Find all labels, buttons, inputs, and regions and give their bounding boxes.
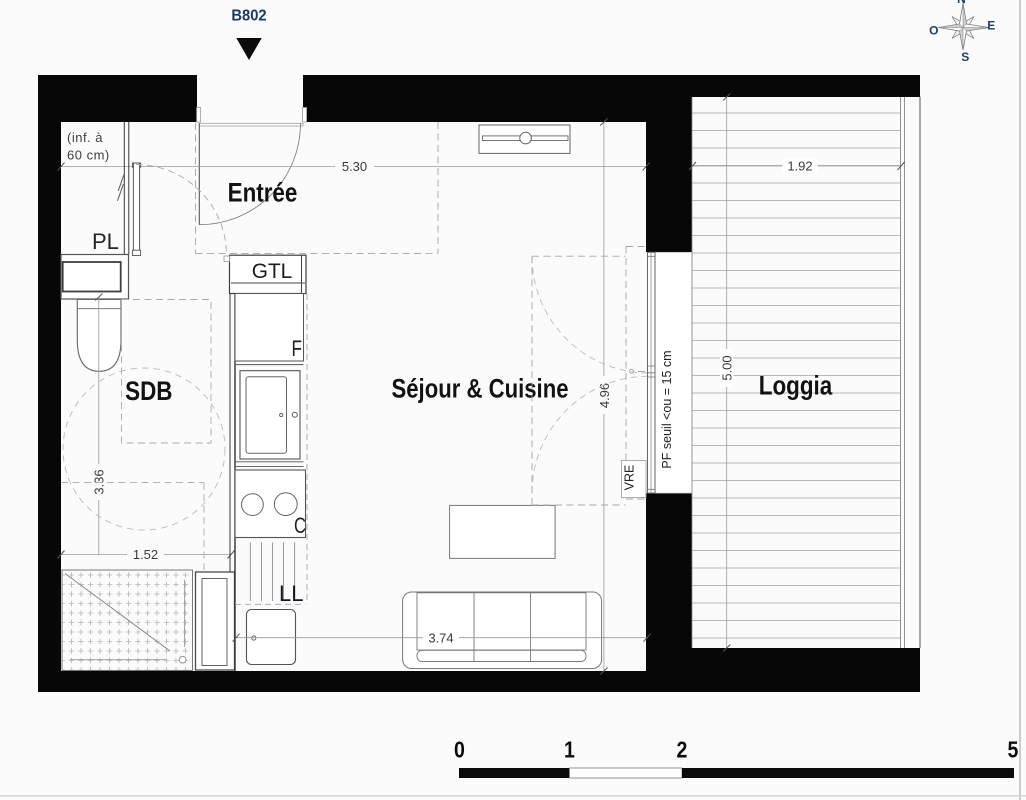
svg-text:60 cm): 60 cm) (67, 148, 110, 163)
svg-text:N: N (957, 0, 966, 6)
svg-text:PF seuil <ou = 15 cm: PF seuil <ou = 15 cm (660, 350, 674, 468)
svg-text:2: 2 (677, 737, 688, 763)
svg-text:PL: PL (92, 229, 119, 254)
svg-text:Loggia: Loggia (759, 372, 833, 401)
svg-text:5.00: 5.00 (720, 355, 735, 380)
svg-text:0: 0 (454, 737, 465, 763)
svg-text:O: O (929, 24, 938, 38)
svg-text:1.92: 1.92 (787, 159, 812, 174)
svg-text:5: 5 (1008, 737, 1019, 763)
svg-text:(inf. à: (inf. à (67, 130, 103, 145)
svg-text:1: 1 (564, 737, 575, 763)
svg-text:GTL: GTL (252, 260, 293, 283)
svg-text:3.74: 3.74 (428, 630, 453, 645)
svg-text:5.30: 5.30 (342, 159, 367, 174)
svg-text:Séjour & Cuisine: Séjour & Cuisine (391, 375, 568, 405)
svg-text:S: S (961, 50, 969, 64)
svg-text:SDB: SDB (125, 377, 172, 406)
svg-text:Entrée: Entrée (228, 178, 298, 207)
svg-text:3.36: 3.36 (91, 469, 106, 494)
svg-text:E: E (987, 19, 995, 33)
svg-text:VRE: VRE (623, 465, 637, 491)
svg-text:F: F (292, 337, 302, 362)
svg-text:LL: LL (279, 581, 303, 606)
svg-text:C: C (294, 514, 306, 539)
svg-text:1.52: 1.52 (133, 547, 158, 562)
svg-text:4.96: 4.96 (597, 383, 612, 408)
svg-text:B802: B802 (231, 7, 266, 24)
